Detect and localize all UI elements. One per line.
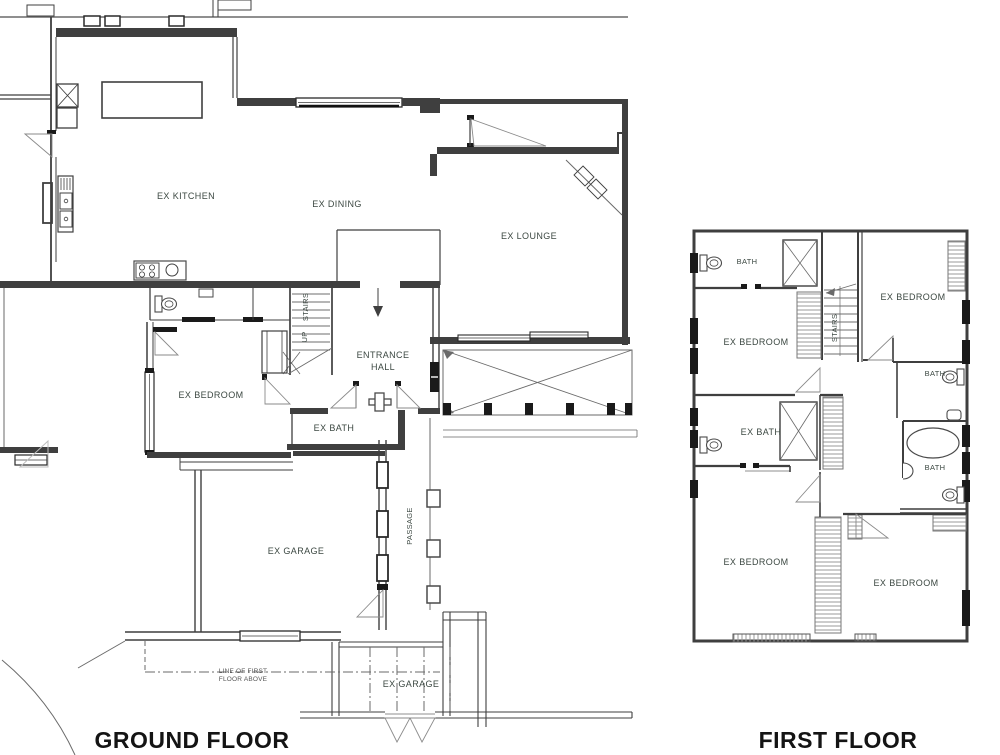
- driveway-arc: [2, 660, 75, 755]
- door-swing: [796, 475, 820, 502]
- door-swing: [265, 378, 290, 404]
- hatched-strip: [933, 515, 966, 531]
- first-floor-plan: BATH EX BEDROOM EX BEDROOM STAIRS BATH E…: [690, 231, 970, 753]
- deck-crossed-area: [443, 350, 637, 437]
- door-swing: [471, 119, 546, 146]
- rooflight-window: [84, 16, 100, 26]
- label-stairs-ground: STAIRS: [301, 293, 310, 321]
- first-floor-title: FIRST FLOOR: [759, 727, 918, 753]
- label-ex-kitchen: EX KITCHEN: [157, 191, 215, 201]
- label-entrance-hall-2: HALL: [371, 362, 395, 372]
- label-ex-bath-ground: EX BATH: [314, 423, 355, 433]
- garage-walls: [78, 440, 388, 668]
- door-swing: [155, 332, 178, 355]
- toilet-icon: [700, 255, 722, 271]
- door-swing: [25, 134, 52, 157]
- label-ex-garage-detached: EX GARAGE: [383, 679, 440, 689]
- door-swing: [868, 336, 893, 360]
- label-ex-bedroom-bottom-right: EX BEDROOM: [873, 578, 938, 588]
- label-bath-mid-right: BATH: [925, 369, 946, 378]
- utility-room: [150, 288, 290, 322]
- passage-pier: [427, 586, 440, 603]
- hatched-strip: [848, 515, 862, 539]
- label-ex-bedroom-top-right: EX BEDROOM: [880, 292, 945, 302]
- kitchen-island: [102, 82, 202, 118]
- rooflight-window: [169, 16, 184, 26]
- label-ex-bedroom-mid-left: EX BEDROOM: [723, 337, 788, 347]
- garage-door-swing: [385, 718, 435, 742]
- label-ex-lounge: EX LOUNGE: [501, 231, 557, 241]
- door-swing: [796, 368, 820, 392]
- window-marker: [855, 634, 876, 641]
- passage-walls: [427, 418, 440, 610]
- label-bath-top-left: BATH: [737, 257, 758, 266]
- site-boundary-lines: [0, 0, 628, 17]
- label-ex-bedroom-bottom-left: EX BEDROOM: [723, 557, 788, 567]
- oven-stack-icon: [58, 176, 73, 232]
- label-up: UP: [300, 331, 309, 342]
- toilet-icon: [155, 296, 177, 312]
- stairs-first: [824, 284, 857, 356]
- label-ex-bedroom-ground: EX BEDROOM: [178, 390, 243, 400]
- rooflight-window: [105, 16, 120, 26]
- first-floor-door-swings: [796, 336, 893, 538]
- hatched-strip: [815, 517, 841, 633]
- window-marker: [733, 634, 810, 642]
- window-marker: [377, 462, 388, 488]
- label-line-of-first-floor-2: FLOOR ABOVE: [219, 676, 268, 683]
- door-swing: [397, 385, 420, 408]
- ground-floor-title: GROUND FLOOR: [94, 727, 289, 753]
- floor-plan-canvas: EX KITCHEN EX DINING EX LOUNGE ENTRANCE …: [0, 0, 1000, 755]
- hob-sink-counter: [134, 261, 186, 280]
- label-entrance-hall-1: ENTRANCE: [357, 350, 410, 360]
- kitchen-walls: [0, 16, 237, 450]
- basin-icon: [947, 410, 961, 420]
- door-swing: [331, 385, 356, 408]
- ground-floor-plan: EX KITCHEN EX DINING EX LOUNGE ENTRANCE …: [0, 0, 637, 755]
- dining-walls: [233, 37, 628, 345]
- hatched-strip: [823, 397, 843, 469]
- label-line-of-first-floor-1: LINE OF FIRST: [219, 668, 267, 675]
- label-ex-dining: EX DINING: [312, 199, 362, 209]
- entrance-arrow: [373, 288, 383, 317]
- toilet-icon: [700, 437, 722, 453]
- label-passage: PASSAGE: [405, 507, 414, 544]
- left-wing-walls: [0, 441, 58, 467]
- floor-plan-page: EX KITCHEN EX DINING EX LOUNGE ENTRANCE …: [0, 0, 1000, 755]
- label-ex-bath-first: EX BATH: [741, 427, 782, 437]
- hatched-strip: [797, 292, 821, 358]
- window-marker: [377, 511, 388, 537]
- passage-pier: [427, 490, 440, 507]
- label-bath-right: BATH: [925, 463, 946, 472]
- hatched-strip: [948, 241, 965, 291]
- entrance-hall-walls: [0, 230, 440, 414]
- toilet-icon: [943, 369, 965, 385]
- passage-pier: [427, 540, 440, 557]
- bathtub-icon: [907, 428, 959, 458]
- label-stairs-first: STAIRS: [830, 314, 839, 342]
- basin-icon: [199, 289, 213, 297]
- toilet-icon: [943, 487, 965, 503]
- label-ex-garage: EX GARAGE: [268, 546, 325, 556]
- window-marker: [377, 555, 388, 581]
- basin-icon: [903, 463, 913, 479]
- fireplace-icon: [566, 160, 622, 215]
- lounge-walls: [420, 106, 630, 344]
